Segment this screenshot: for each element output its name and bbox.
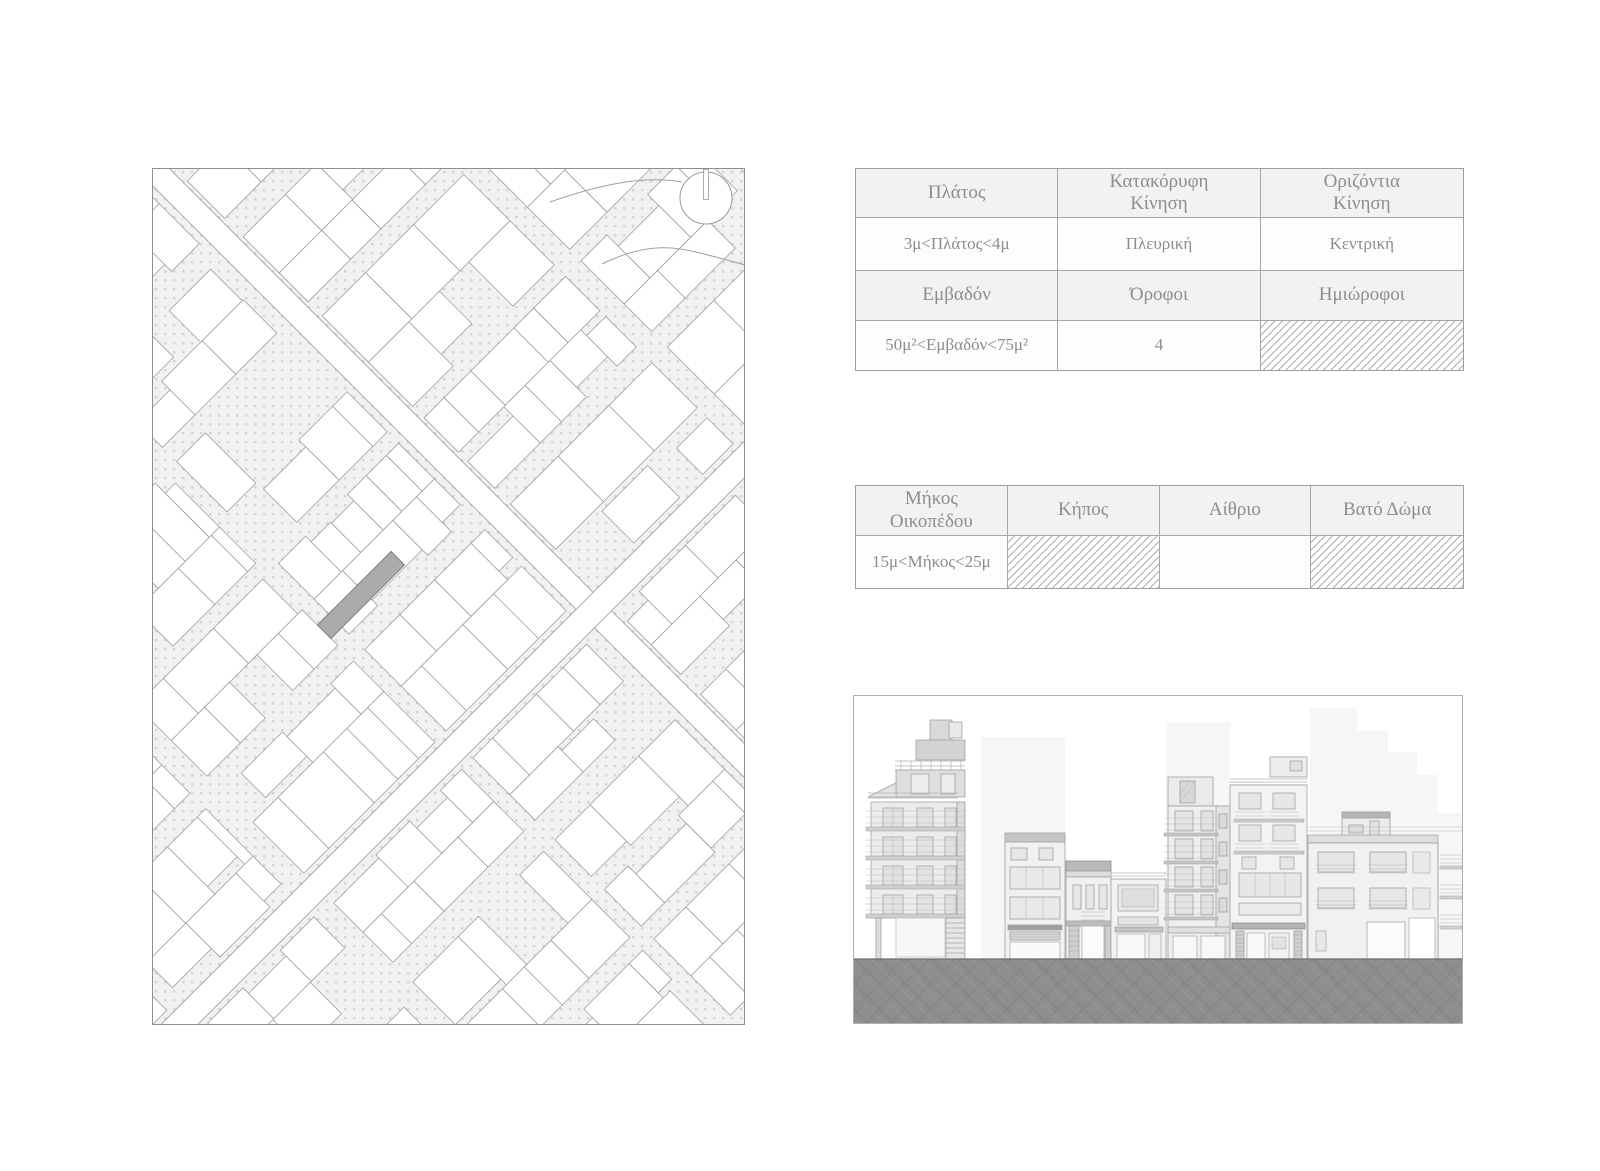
building-3: [1066, 861, 1111, 959]
data-cell: Πλευρική: [1058, 218, 1260, 271]
building-2: [1005, 833, 1065, 959]
street-elevation-panel: [853, 695, 1463, 1029]
header-cell: Όροφοι: [1058, 271, 1260, 321]
building-4: [1111, 873, 1166, 959]
header-cell: Βατό Δώμα: [1311, 486, 1463, 536]
building-1: [866, 720, 965, 959]
header-cell: Αίθριο: [1160, 486, 1312, 536]
building-6: [1230, 757, 1307, 959]
header-cell: Κήπος: [1008, 486, 1160, 536]
data-cell: Κεντρική: [1261, 218, 1463, 271]
hatched-cell: [1311, 536, 1463, 588]
site-plan-map: [152, 168, 745, 1025]
header-cell: Πλάτος: [856, 169, 1058, 218]
header-cell: Ημιώροφοι: [1261, 271, 1463, 321]
header-cell: Εμβαδόν: [856, 271, 1058, 321]
ground-section: [853, 959, 1463, 1024]
header-cell: Κατακόρυφη Κίνηση: [1058, 169, 1260, 218]
site-plan-panel: [152, 168, 745, 1030]
zoning-table-dimensions: Πλάτος Κατακόρυφη Κίνηση Οριζόντια Κίνησ…: [855, 168, 1464, 371]
data-cell: 15μ<Μήκος<25μ: [856, 536, 1008, 588]
header-cell: Μήκος Οικοπέδου: [856, 486, 1008, 536]
header-cell: Οριζόντια Κίνηση: [1261, 169, 1463, 218]
data-cell: [1160, 536, 1312, 588]
data-cell: 4: [1058, 321, 1260, 370]
data-cell: 3μ<Πλάτος<4μ: [856, 218, 1058, 271]
zoning-table-plot: Μήκος Οικοπέδου Κήπος Αίθριο Βατό Δώμα 1…: [855, 485, 1464, 589]
hatched-cell: [1008, 536, 1160, 588]
street-elevation-drawing: [853, 695, 1463, 1024]
data-cell: 50μ²<Εμβαδόν<75μ²: [856, 321, 1058, 370]
hatched-cell: [1261, 321, 1463, 370]
